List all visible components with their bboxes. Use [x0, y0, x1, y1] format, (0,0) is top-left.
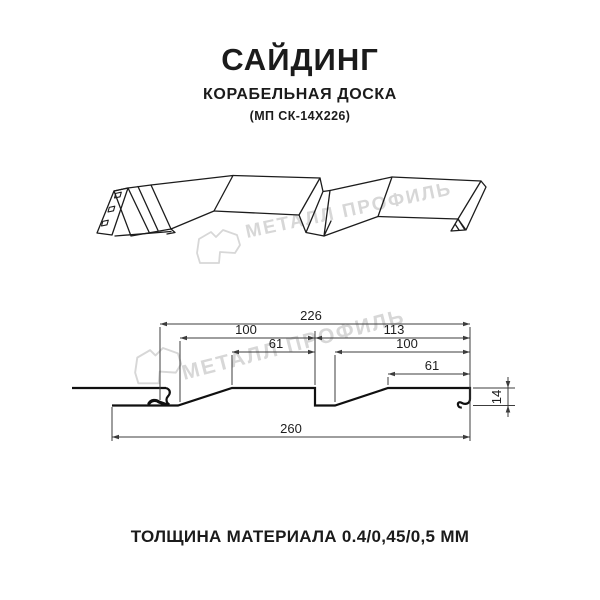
slope-face-1	[151, 176, 233, 230]
panel-profile	[112, 388, 470, 408]
dimension-arrow	[506, 381, 511, 388]
dim-label-61-right: 61	[425, 358, 439, 373]
dimension-arrow	[388, 372, 395, 377]
dimension-arrow	[112, 435, 119, 440]
lock-lip	[114, 185, 171, 236]
dimension-arrow	[335, 350, 342, 355]
dimension-arrow	[463, 372, 470, 377]
dimension-arrow	[180, 336, 187, 341]
dim-label-14: 14	[489, 390, 504, 404]
cross-section-drawing	[72, 388, 470, 408]
dim-label-226: 226	[300, 308, 322, 323]
dim-label-260: 260	[280, 421, 302, 436]
lock-hook	[166, 388, 170, 405]
brand-watermark-text: МЕТАЛЛ ПРОФИЛЬ	[179, 305, 407, 385]
dim-label-100-right: 100	[396, 336, 418, 351]
drawing-area: МЕТАЛЛ ПРОФИЛЬ	[0, 0, 600, 600]
dimension-arrow	[463, 350, 470, 355]
dimension-arrow	[463, 336, 470, 341]
nail-hole	[108, 206, 115, 212]
material-thickness-label: ТОЛЩИНА МАТЕРИАЛА 0.4/0,45/0,5 ММ	[0, 527, 600, 547]
brand-logo-icon	[197, 230, 240, 263]
dim-label-100-left: 100	[235, 322, 257, 337]
end-fold	[458, 181, 486, 230]
dimension-arrow	[463, 322, 470, 327]
dimension-arrow	[160, 322, 167, 327]
dimension-arrow	[506, 406, 511, 413]
nail-hole	[102, 220, 109, 226]
product-drawing-page: САЙДИНГ КОРАБЕЛЬНАЯ ДОСКА (МП СК-14Х226)…	[0, 0, 600, 600]
brand-logo-icon	[135, 348, 181, 383]
brand-watermark-text: МЕТАЛЛ ПРОФИЛЬ	[244, 179, 454, 243]
dim-label-113: 113	[384, 322, 405, 337]
dim-label-61-left: 61	[269, 336, 283, 351]
lip-fold-line	[128, 188, 149, 232]
lock-curl	[149, 400, 166, 404]
dimension-arrow	[463, 435, 470, 440]
